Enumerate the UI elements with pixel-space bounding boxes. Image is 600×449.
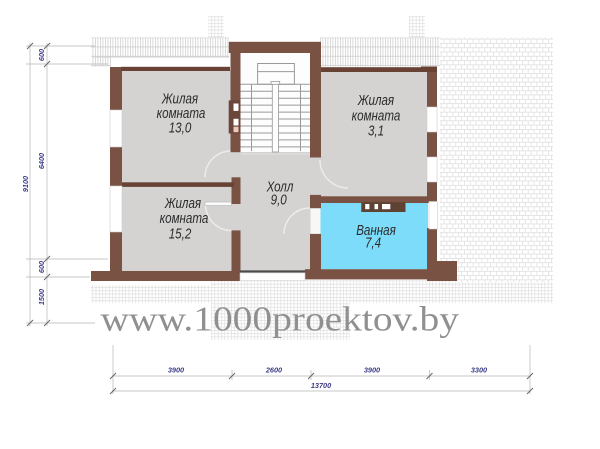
svg-text:13700: 13700 [311,381,331,390]
svg-text:3300: 3300 [471,366,487,375]
svg-text:6400: 6400 [37,153,46,169]
svg-text:Жилая: Жилая [357,92,394,109]
svg-text:3900: 3900 [364,366,380,375]
svg-text:комната: комната [160,210,209,227]
svg-text:2600: 2600 [265,366,282,375]
svg-text:9100: 9100 [21,176,30,192]
svg-text:15,2: 15,2 [169,225,192,242]
svg-text:3900: 3900 [168,366,184,375]
svg-text:7,4: 7,4 [365,234,381,251]
svg-text:www.1000proektov.by: www.1000proektov.by [101,300,460,339]
svg-text:600: 600 [37,49,46,61]
svg-text:1500: 1500 [37,289,46,305]
svg-text:3,1: 3,1 [368,122,384,139]
svg-text:9,0: 9,0 [271,191,288,208]
svg-text:13,0: 13,0 [169,119,192,136]
svg-text:600: 600 [37,261,46,273]
